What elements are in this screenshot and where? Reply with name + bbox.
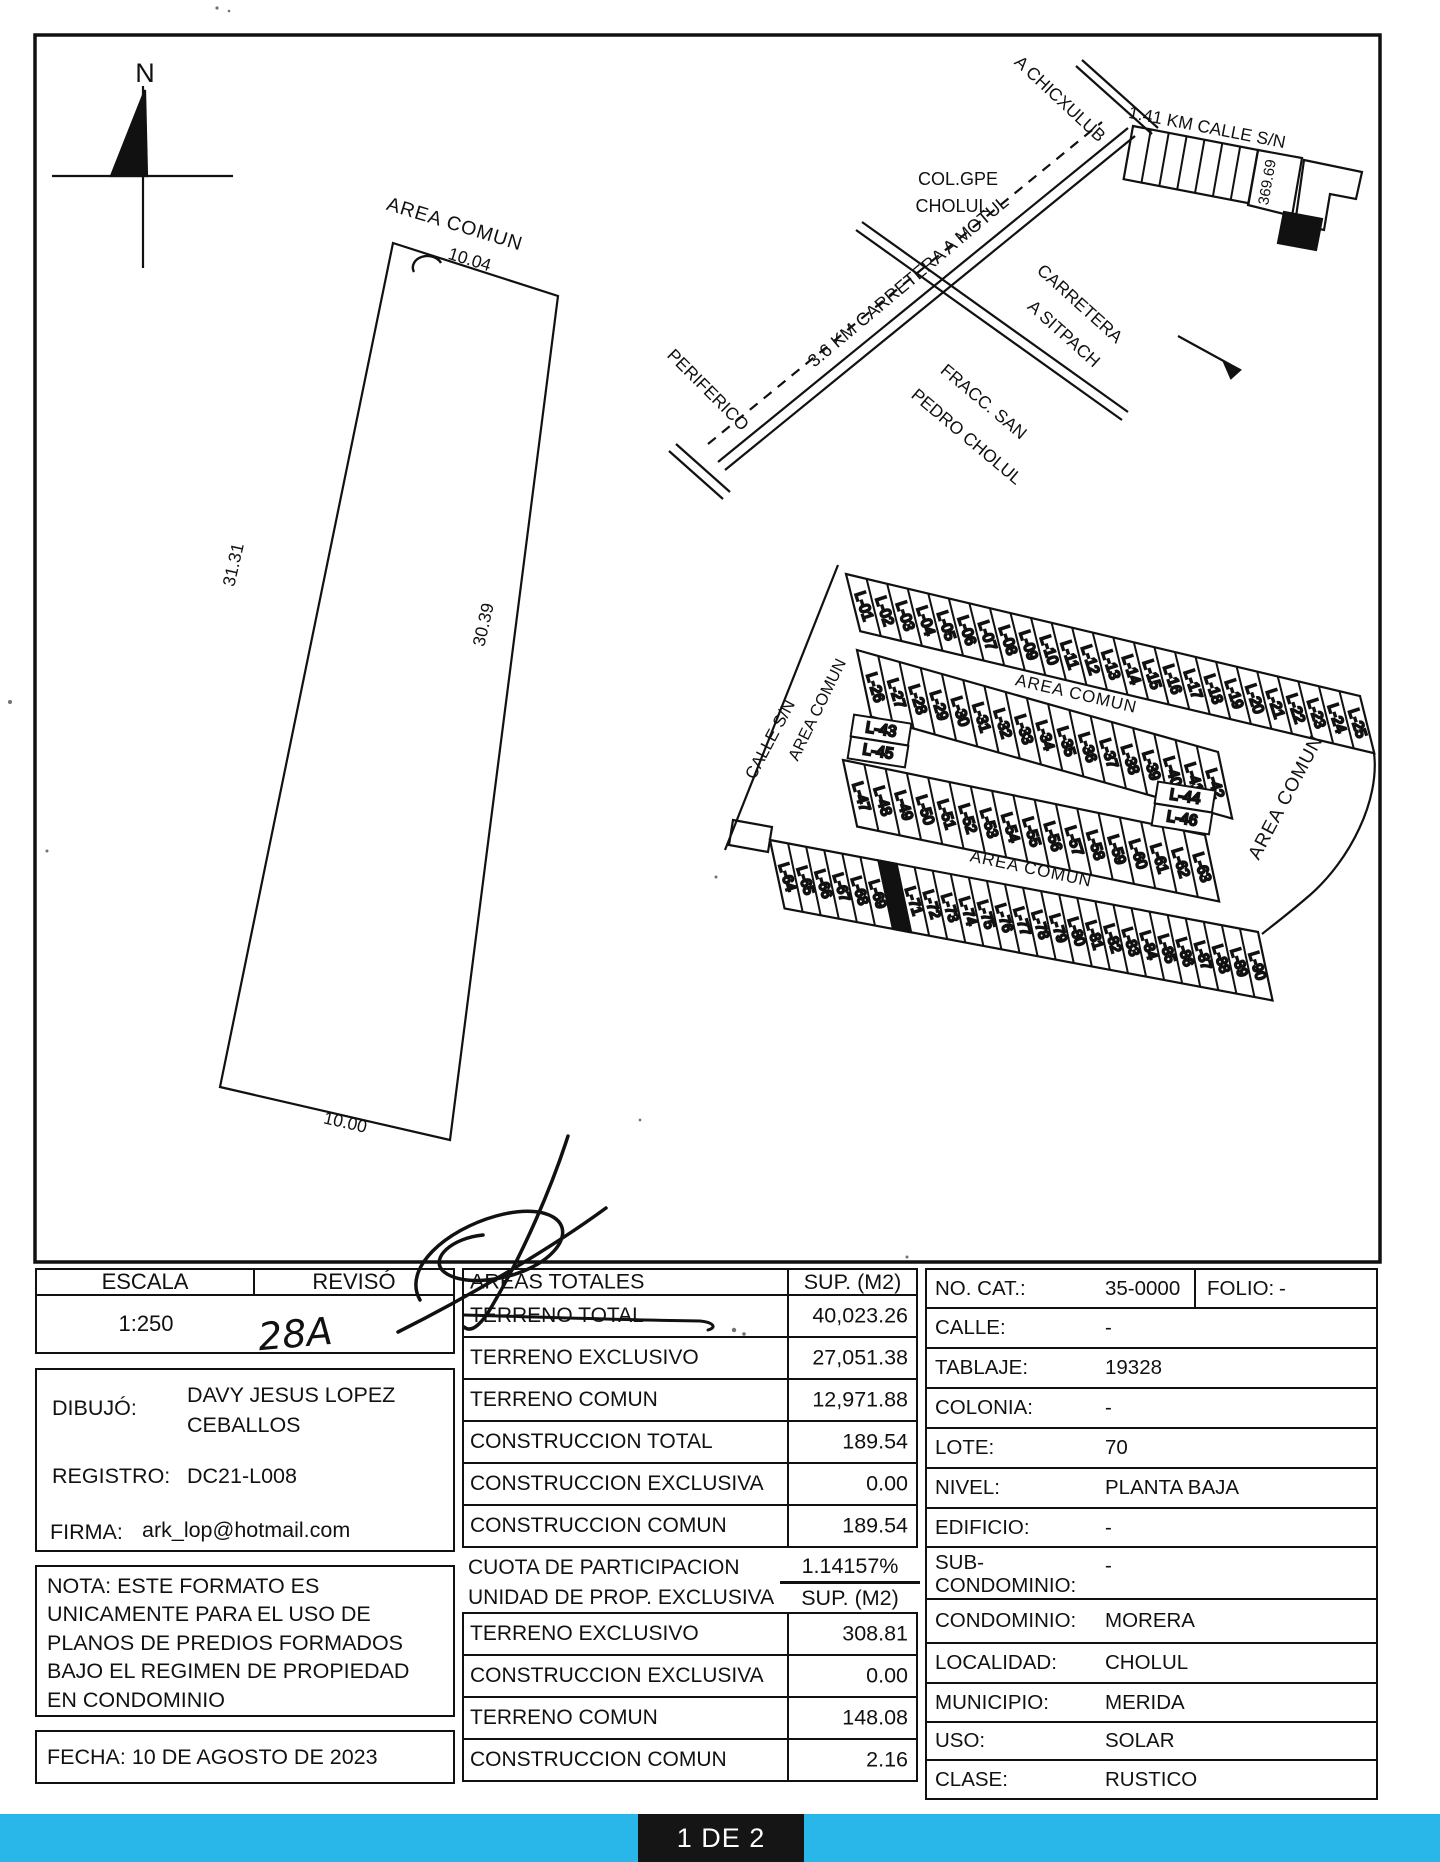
unidad-label: CONSTRUCCION EXCLUSIVA [470, 1664, 764, 1688]
lot-L-18: L-18 [1200, 672, 1225, 706]
unidad-table: TERRENO EXCLUSIVO308.81CONSTRUCCION EXCL… [462, 1612, 918, 1788]
lot-L-29: L-29 [926, 689, 951, 723]
lot-L-85: L-85 [1154, 933, 1178, 965]
map-label-frontage: 369.69 [1255, 158, 1280, 206]
unidad-value: 148.08 [842, 1706, 908, 1731]
lot-L-31: L-31 [969, 701, 994, 735]
plan-label-area-upper: AREA COMUN [1014, 670, 1139, 716]
predio-row: CONDOMINIO:MORERA [925, 1598, 1378, 1644]
site-plan-boundaries [725, 565, 1375, 934]
predio-label: NO. CAT.: [935, 1277, 1026, 1301]
lot-L-61: L-61 [1147, 842, 1172, 876]
areas-value: 0.00 [866, 1472, 908, 1497]
predio-label: EDIFICIO: [935, 1516, 1030, 1540]
lot-L-71: L-71 [901, 885, 925, 917]
unidad-label: UNIDAD DE PROP. EXCLUSIVA [468, 1586, 774, 1610]
map-label-sitpach-1: CARRETERA [1033, 260, 1127, 347]
predio-label: TABLAJE: [935, 1356, 1028, 1380]
dibujo-label: DIBUJÓ: [52, 1396, 137, 1421]
areas-label: CONSTRUCCION COMUN [470, 1514, 727, 1538]
svg-text:L-44: L-44 [1168, 786, 1202, 808]
predio-value: SOLAR [1105, 1729, 1175, 1753]
lot-L-56: L-56 [1040, 820, 1065, 854]
lot-L-34: L-34 [1032, 719, 1057, 753]
lot-L-06: L-06 [954, 614, 979, 648]
lot-L-08: L-08 [995, 623, 1020, 657]
svg-text:L-46: L-46 [1165, 808, 1198, 830]
nota-box: NOTA: ESTE FORMATO ES UNICAMENTE PARA EL… [35, 1565, 455, 1717]
map-label-calle-sn: 1.41 KM CALLE S/N [1127, 102, 1287, 152]
unidad-value: 308.81 [842, 1622, 908, 1647]
lot-L-04: L-04 [913, 604, 938, 638]
location-map-roads [669, 60, 1240, 499]
predio-row: EDIFICIO:- [925, 1507, 1378, 1548]
lot-L-63: L-63 [1189, 851, 1214, 885]
unidad-label: TERRENO EXCLUSIVO [470, 1622, 699, 1646]
lot-L-36: L-36 [1075, 731, 1100, 765]
north-label: N [135, 58, 155, 88]
lot-L-14: L-14 [1118, 653, 1143, 687]
plan-label-calle-sn: CALLE S/N [741, 697, 799, 783]
lot-L-39: L-39 [1139, 749, 1164, 783]
lot-L-76: L-76 [992, 902, 1016, 934]
map-label-chicxulub: A CHICXULUB [1011, 52, 1110, 146]
areas-title: AREAS TOTALES [470, 1270, 644, 1295]
unidad-value-cell: 0.00 [787, 1656, 916, 1696]
plan-sheet: ESCALA REVISÓ 1:250 28A DIBUJÓ: DAVY JES… [0, 0, 1440, 1862]
lot-L-60: L-60 [1125, 837, 1150, 871]
predio-label: NIVEL: [935, 1476, 1000, 1500]
lot-L-55: L-55 [1019, 815, 1044, 849]
lot-L-57: L-57 [1061, 824, 1086, 858]
lot-L-46: L-46 [1152, 804, 1213, 835]
unidad-value: 0.00 [866, 1664, 908, 1689]
lot-L-26: L-26 [862, 671, 887, 705]
lot-L-62: L-62 [1168, 846, 1193, 880]
lot-L-25: L-25 [1344, 706, 1369, 740]
parcel-dim-top: 10.04 [446, 243, 494, 275]
lot-L-88: L-88 [1208, 943, 1232, 975]
plan-label-area-lower: AREA COMUN [968, 846, 1094, 890]
lot-L-37: L-37 [1096, 737, 1121, 771]
lot-L-19: L-19 [1221, 677, 1246, 711]
lot-L-65: L-65 [793, 864, 817, 896]
lot-L-50: L-50 [912, 793, 937, 827]
lot-L-27: L-27 [884, 677, 909, 711]
map-label-motul: 3.6 KM CARRETERA A MOTUL [804, 192, 1012, 371]
page-indicator: 1 DE 2 [677, 1823, 766, 1854]
lot-L-64: L-64 [775, 861, 799, 893]
unidad-value: 2.16 [866, 1748, 908, 1773]
areas-value: 12,971.88 [812, 1388, 908, 1413]
areas-value-cell: 189.54 [787, 1422, 916, 1462]
predio-row: CALLE:- [925, 1307, 1378, 1349]
predio-value: MORERA [1105, 1609, 1195, 1633]
parcel-dim-bottom: 10.00 [322, 1107, 369, 1136]
lot-L-66: L-66 [811, 868, 835, 900]
cuota-block: CUOTA DE PARTICIPACION 1.14157% UNIDAD D… [462, 1554, 918, 1612]
lot-L-87: L-87 [1190, 939, 1214, 971]
svg-text:L-45: L-45 [861, 741, 894, 763]
predio-value: 70 [1105, 1436, 1128, 1460]
lot-L-01: L-01 [851, 589, 876, 623]
lot-L-52: L-52 [955, 802, 980, 836]
predio-value: MERIDA [1105, 1691, 1185, 1715]
areas-row: TERRENO COMUN12,971.88 [462, 1378, 918, 1422]
unidad-value-cell: 308.81 [787, 1614, 916, 1654]
lot-L-32: L-32 [990, 707, 1015, 741]
lot-L-11: L-11 [1057, 639, 1082, 672]
registro-label: REGISTRO: [52, 1464, 170, 1489]
scan-artifacts [8, 6, 909, 1335]
map-label-sitpach-2: A SITPACH [1024, 296, 1104, 371]
areas-value: 27,051.38 [812, 1346, 908, 1371]
areas-row: TERRENO TOTAL40,023.26 [462, 1294, 918, 1338]
predio-value2: - [1279, 1277, 1286, 1301]
areas-value-cell: 40,023.26 [787, 1296, 916, 1336]
predio-row: CLASE:RUSTICO [925, 1759, 1378, 1800]
fecha-box: FECHA: 10 DE AGOSTO DE 2023 [35, 1730, 455, 1784]
areas-totales-table: AREAS TOTALES SUP. (M2) TERRENO TOTAL40,… [462, 1268, 918, 1558]
lot-L-24: L-24 [1324, 702, 1349, 736]
predio-row: TABLAJE:19328 [925, 1347, 1378, 1389]
unidad-row: CONSTRUCCION EXCLUSIVA0.00 [462, 1654, 918, 1698]
lot-L-54: L-54 [998, 811, 1023, 845]
cuota-value: 1.14157% [780, 1554, 920, 1584]
predio-value: 19328 [1105, 1356, 1162, 1380]
lot-L-48: L-48 [870, 784, 895, 818]
predio-value: PLANTA BAJA [1105, 1476, 1239, 1500]
lot-L-20: L-20 [1242, 682, 1267, 716]
map-label-fracc-2: PEDRO CHOLUL [908, 384, 1027, 488]
areas-header-row: AREAS TOTALES SUP. (M2) [462, 1268, 918, 1296]
lot-L-02: L-02 [872, 594, 897, 628]
lot-L-35: L-35 [1054, 725, 1079, 759]
areas-label: TERRENO COMUN [470, 1388, 658, 1412]
lot-L-09: L-09 [1015, 628, 1040, 662]
areas-row: CONSTRUCCION COMUN189.54 [462, 1504, 918, 1548]
map-label-periferico: PERIFERICO [663, 345, 753, 435]
predio-value: - [1105, 1316, 1112, 1340]
predio-label: LOTE: [935, 1436, 994, 1460]
predio-value: 35-0000 [1105, 1277, 1180, 1301]
map-label-colonia-1: COL.GPE [918, 169, 998, 189]
parcel-outline [220, 243, 558, 1140]
plan-label-area-right: AREA COMUN [1245, 732, 1328, 863]
lot-L-51: L-51 [934, 798, 959, 832]
lot-L-43: L-43 [851, 715, 912, 746]
lot-L-16: L-16 [1159, 663, 1184, 697]
areas-unit-header: SUP. (M2) [787, 1270, 916, 1294]
predio-label: COLONIA: [935, 1396, 1033, 1420]
areas-label: TERRENO TOTAL [470, 1304, 644, 1328]
predio-table: NO. CAT.:35-0000FOLIO:-CALLE:-TABLAJE:19… [925, 1268, 1378, 1804]
dibujo-value: DAVY JESUS LOPEZ CEBALLOS [187, 1380, 395, 1440]
areas-row: CONSTRUCCION TOTAL189.54 [462, 1420, 918, 1464]
predio-label: SUB- CONDOMINIO: [935, 1551, 1076, 1597]
areas-label: CONSTRUCCION EXCLUSIVA [470, 1472, 764, 1496]
lot-L-33: L-33 [1011, 713, 1036, 747]
parcel-dim-left: 31.31 [218, 541, 247, 588]
areas-value: 189.54 [842, 1430, 908, 1455]
lot-L-28: L-28 [905, 683, 930, 717]
lot-L-47: L-47 [848, 780, 873, 814]
predio-row: COLONIA:- [925, 1387, 1378, 1429]
lot-L-75: L-75 [974, 899, 998, 931]
predio-row: MUNICIPIO:MERIDA [925, 1682, 1378, 1723]
registro-value: DC21-L008 [187, 1464, 297, 1489]
areas-label: CONSTRUCCION TOTAL [470, 1430, 713, 1454]
areas-value: 189.54 [842, 1514, 908, 1539]
lot-L-41: L-41 [1181, 761, 1206, 795]
unidad-row: TERRENO COMUN148.08 [462, 1696, 918, 1740]
lot-L-58: L-58 [1083, 828, 1108, 862]
areas-value-cell: 27,051.38 [787, 1338, 916, 1378]
lot-L-21: L-21 [1262, 687, 1287, 721]
cuota-label: CUOTA DE PARTICIPACION [468, 1556, 739, 1580]
lot-L-40: L-40 [1160, 755, 1185, 789]
lot-L-81: L-81 [1082, 919, 1106, 951]
lot-L-77: L-77 [1010, 905, 1034, 937]
reviso-handwritten-value: 28A [256, 1309, 334, 1359]
predio-label: CALLE: [935, 1316, 1006, 1340]
predio-row: LOTE:70 [925, 1427, 1378, 1469]
predio-label: CONDOMINIO: [935, 1609, 1076, 1633]
lot-L-74: L-74 [955, 895, 979, 927]
areas-row: TERRENO EXCLUSIVO27,051.38 [462, 1336, 918, 1380]
frontage-strip [1248, 150, 1362, 250]
unidad-value-cell: 2.16 [787, 1740, 916, 1780]
lot-L-38: L-38 [1117, 743, 1142, 777]
areas-label: TERRENO EXCLUSIVO [470, 1346, 699, 1370]
unidad-row: TERRENO EXCLUSIVO308.81 [462, 1612, 918, 1656]
areas-value-cell: 0.00 [787, 1464, 916, 1504]
predio-folio-divider [1194, 1270, 1196, 1307]
lot-L-03: L-03 [892, 599, 917, 633]
lot-L-84: L-84 [1136, 929, 1160, 961]
map-label-fracc-1: FRACC. SAN [937, 360, 1031, 443]
lot-L-05: L-05 [933, 609, 958, 643]
unidad-label: CONSTRUCCION COMUN [470, 1748, 727, 1772]
lot-L-17: L-17 [1180, 667, 1205, 701]
lot-L-42: L-42 [1202, 767, 1227, 801]
parcel-dim-right: 30.39 [468, 601, 497, 648]
lot-L-45: L-45 [848, 737, 909, 768]
firma-value: ark_lop@hotmail.com [142, 1518, 350, 1543]
predio-label: CLASE: [935, 1768, 1008, 1792]
north-arrow-icon [52, 86, 233, 268]
predio-row: USO:SOLAR [925, 1721, 1378, 1761]
lot-L-90: L-90 [1245, 950, 1269, 982]
predio-row: SUB- CONDOMINIO:- [925, 1546, 1378, 1600]
lot-L-23: L-23 [1303, 697, 1328, 731]
predio-value: CHOLUL [1105, 1651, 1188, 1675]
lot-L-67: L-67 [829, 871, 853, 903]
lot-L-78: L-78 [1028, 909, 1052, 941]
lot-L-70-highlighted [878, 860, 911, 932]
predio-label: LOCALIDAD: [935, 1651, 1057, 1675]
predio-value: - [1105, 1396, 1112, 1420]
lot-L-10: L-10 [1036, 633, 1061, 667]
map-label-colonia-2: CHOLUL [915, 196, 988, 216]
predio-label2: FOLIO: [1207, 1277, 1274, 1301]
lot-L-89: L-89 [1227, 946, 1251, 978]
areas-value-cell: 189.54 [787, 1506, 916, 1546]
lot-L-30: L-30 [947, 695, 972, 729]
parcel-area-label: AREA COMUN [384, 193, 525, 255]
predio-row: LOCALIDAD:CHOLUL [925, 1642, 1378, 1684]
svg-text:L-43: L-43 [864, 719, 897, 741]
predio-value: - [1105, 1516, 1112, 1540]
predio-row: NIVEL:PLANTA BAJA [925, 1467, 1378, 1509]
lot-L-82: L-82 [1100, 922, 1124, 954]
lot-L-15: L-15 [1139, 658, 1164, 692]
predio-row: NO. CAT.:35-0000FOLIO:- [925, 1268, 1378, 1309]
predio-label: USO: [935, 1729, 985, 1753]
lot-L-79: L-79 [1046, 912, 1070, 944]
predio-label: MUNICIPIO: [935, 1691, 1049, 1715]
lot-L-49: L-49 [891, 789, 916, 823]
drawing-frame [35, 35, 1380, 1262]
lot-L-80: L-80 [1064, 916, 1088, 948]
credits-table: DIBUJÓ: DAVY JESUS LOPEZ CEBALLOS REGIST… [35, 1368, 455, 1552]
escala-header: ESCALA [37, 1270, 255, 1296]
firma-label: FIRMA: [50, 1520, 123, 1545]
lot-L-68: L-68 [847, 875, 871, 907]
escala-reviso-table: ESCALA REVISÓ 1:250 [35, 1268, 455, 1354]
predio-value: - [1105, 1554, 1112, 1578]
lot-L-22: L-22 [1283, 692, 1308, 726]
lot-L-53: L-53 [976, 806, 1001, 840]
unidad-label: TERRENO COMUN [470, 1706, 658, 1730]
page-indicator-box: 1 DE 2 [638, 1814, 804, 1862]
plan-label-area-left: AREA COMUN [785, 656, 850, 764]
strip-black-lot [1278, 212, 1322, 250]
areas-row: CONSTRUCCION EXCLUSIVA0.00 [462, 1462, 918, 1506]
lot-L-44: L-44 [1155, 782, 1216, 813]
lot-L-13: L-13 [1098, 648, 1123, 682]
lot-L-73: L-73 [937, 892, 961, 924]
unidad-row: CONSTRUCCION COMUN2.16 [462, 1738, 918, 1782]
lot-L-69: L-69 [865, 878, 889, 910]
areas-value: 40,023.26 [812, 1304, 908, 1329]
reviso-header: REVISÓ [255, 1270, 453, 1296]
lot-L-12: L-12 [1077, 643, 1102, 677]
unidad-unit-header: SUP. (M2) [780, 1586, 920, 1611]
lots-layer: L-01L-02L-03L-04L-05L-06L-07L-08L-09L-10… [770, 126, 1374, 1000]
lot-L-07: L-07 [974, 619, 999, 653]
lot-L-72: L-72 [919, 888, 943, 920]
escala-value: 1:250 [37, 1296, 255, 1352]
areas-value-cell: 12,971.88 [787, 1380, 916, 1420]
unidad-value-cell: 148.08 [787, 1698, 916, 1738]
lot-L-86: L-86 [1172, 936, 1196, 968]
lot-L-83: L-83 [1118, 926, 1142, 958]
predio-value: RUSTICO [1105, 1768, 1197, 1792]
lot-L-59: L-59 [1104, 833, 1129, 867]
